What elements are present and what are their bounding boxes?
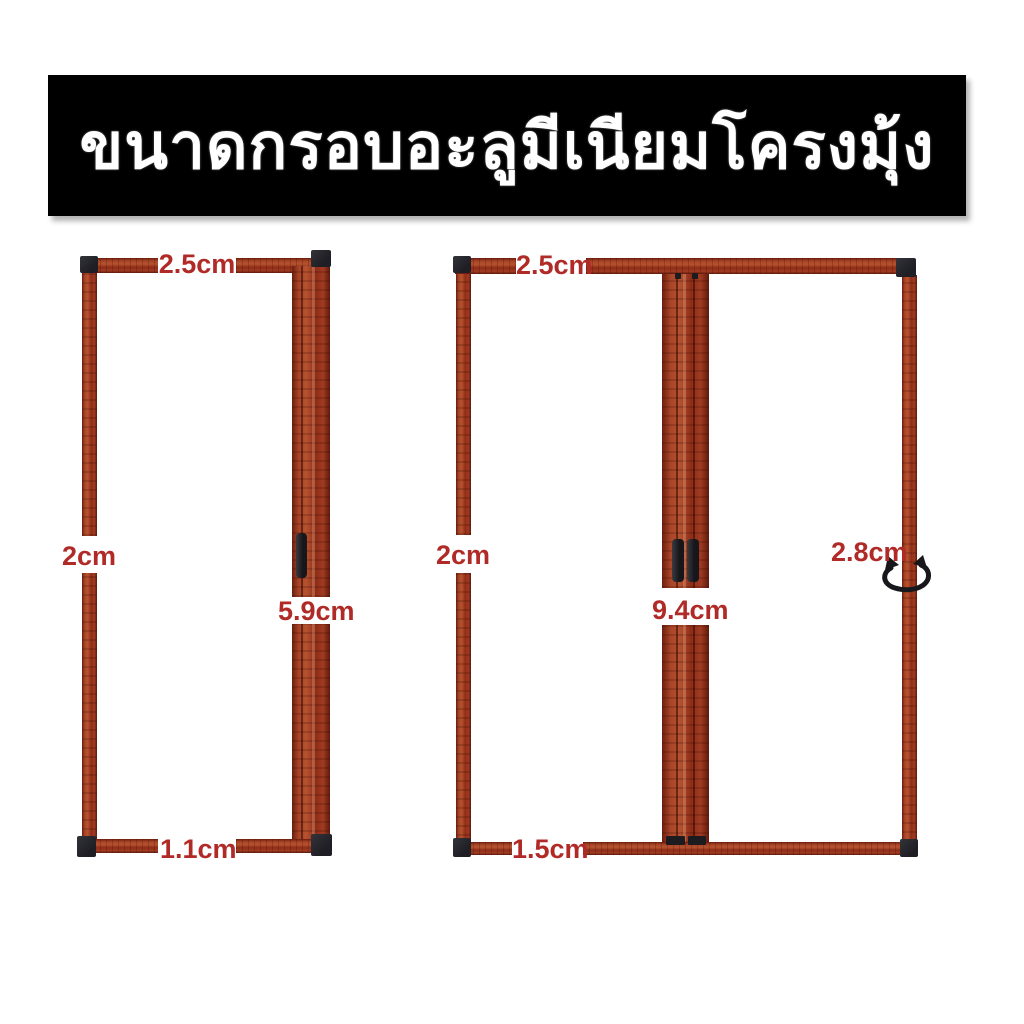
dimension-label-top: 2.5cm [158, 251, 236, 278]
bottom-rail [583, 842, 902, 855]
corner-connector [80, 256, 98, 273]
grain-highlight [312, 624, 315, 841]
column-foot [666, 836, 685, 845]
dimension-label-bottom: 1.1cm [160, 836, 234, 863]
left-stile [456, 274, 471, 535]
left-stile [456, 573, 471, 845]
grain-line [676, 625, 678, 843]
center-meeting-stile [662, 625, 709, 843]
left-stile [82, 271, 97, 536]
left-stile [82, 573, 97, 839]
corner-connector [311, 250, 331, 267]
page-title: ขนาดกรอบอะลูมีเนียมโครงมุ้ง [80, 95, 935, 197]
bottom-rail [236, 839, 313, 853]
screen-roll-column [292, 624, 330, 841]
dimension-label-left: 2cm [62, 543, 114, 570]
corner-connector [453, 838, 471, 857]
grain-highlight [312, 266, 315, 597]
grain-line [693, 625, 695, 843]
title-banner: ขนาดกรอบอะลูมีเนียมโครงมุ้ง [48, 75, 966, 216]
dimension-label-right: 5.9cm [278, 598, 346, 625]
track-notch [692, 273, 698, 279]
grain-line [301, 624, 303, 841]
product-image-canvas: ขนาดกรอบอะลูมีเนียมโครงมุ้ง 2.5cm 2cm 5 [0, 0, 1024, 1024]
center-meeting-stile [662, 274, 709, 588]
track-notch [675, 273, 681, 279]
corner-connector [311, 834, 332, 856]
door-handle [687, 539, 699, 582]
column-foot [688, 836, 706, 845]
dimension-label-left: 2cm [436, 542, 488, 569]
corner-connector [896, 258, 916, 277]
top-rail [586, 258, 913, 274]
door-handle [672, 539, 684, 582]
corner-connector [453, 256, 471, 273]
dimension-label-right: 2.8cm [831, 539, 899, 566]
door-handle [296, 533, 307, 578]
dimension-label-bottom: 1.5cm [512, 836, 584, 863]
grain-highlight [683, 625, 686, 843]
corner-connector [77, 836, 96, 857]
dimension-label-top: 2.5cm [516, 252, 586, 279]
dimension-label-center: 9.4cm [652, 597, 720, 624]
corner-connector [900, 839, 918, 857]
